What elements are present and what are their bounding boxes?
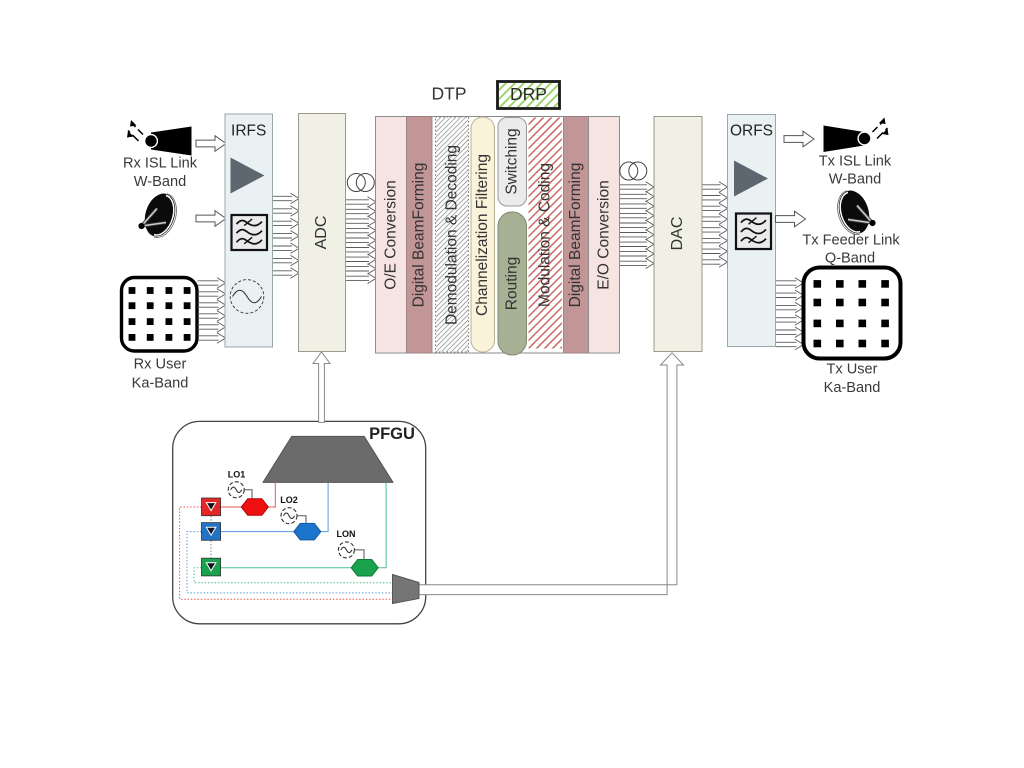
svg-text:Digital BeamForming: Digital BeamForming	[567, 163, 584, 308]
svg-text:Modulation & Coding: Modulation & Coding	[537, 163, 554, 307]
svg-text:Rx User: Rx User	[134, 356, 187, 372]
svg-text:Ka-Band: Ka-Band	[824, 380, 881, 396]
svg-text:IRFS: IRFS	[231, 123, 266, 140]
svg-text:PFGU: PFGU	[369, 425, 415, 443]
svg-text:Switching: Switching	[504, 128, 521, 194]
svg-text:W-Band: W-Band	[134, 174, 186, 190]
svg-text:Rx ISL Link: Rx ISL Link	[123, 155, 198, 171]
svg-text:DTP: DTP	[432, 84, 467, 104]
svg-text:W-Band: W-Band	[829, 171, 881, 187]
svg-text:Tx ISL Link: Tx ISL Link	[819, 153, 892, 169]
svg-text:E/O Conversion: E/O Conversion	[596, 180, 613, 289]
svg-text:DRP: DRP	[510, 84, 547, 104]
svg-text:O/E Conversion: O/E Conversion	[383, 180, 400, 289]
svg-text:Tx Feeder Link: Tx Feeder Link	[802, 232, 900, 248]
svg-text:Ka-Band: Ka-Band	[132, 375, 189, 391]
svg-text:Digital BeamForming: Digital BeamForming	[411, 163, 428, 308]
svg-text:LON: LON	[337, 529, 356, 539]
svg-text:ADC: ADC	[313, 216, 330, 250]
svg-text:Demodulation & Decoding: Demodulation & Decoding	[444, 145, 461, 325]
svg-text:Tx User: Tx User	[826, 361, 877, 377]
svg-text:LO2: LO2	[280, 495, 298, 505]
svg-text:Routing: Routing	[504, 257, 521, 310]
svg-text:ORFS: ORFS	[730, 123, 773, 140]
svg-text:Channelization Filtering: Channelization Filtering	[474, 154, 491, 316]
svg-text:LO1: LO1	[228, 469, 246, 479]
svg-text:DAC: DAC	[669, 217, 686, 251]
svg-text:Q-Band: Q-Band	[825, 250, 875, 266]
